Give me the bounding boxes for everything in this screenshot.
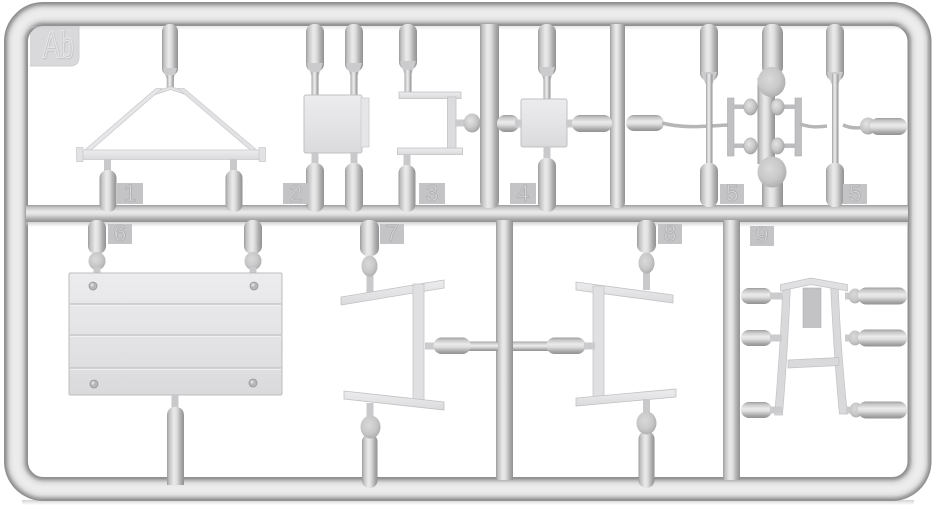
svg-text:2: 2 xyxy=(290,180,303,206)
svg-text:6: 6 xyxy=(114,220,127,246)
svg-text:1: 1 xyxy=(124,180,137,206)
svg-text:5: 5 xyxy=(849,180,862,206)
svg-text:9: 9 xyxy=(756,222,769,248)
svg-text:7: 7 xyxy=(386,220,399,246)
svg-text:8: 8 xyxy=(664,220,677,246)
svg-text:3: 3 xyxy=(426,180,439,206)
svg-text:Ab: Ab xyxy=(43,24,74,66)
svg-text:4: 4 xyxy=(517,180,530,206)
svg-text:5: 5 xyxy=(726,180,739,206)
